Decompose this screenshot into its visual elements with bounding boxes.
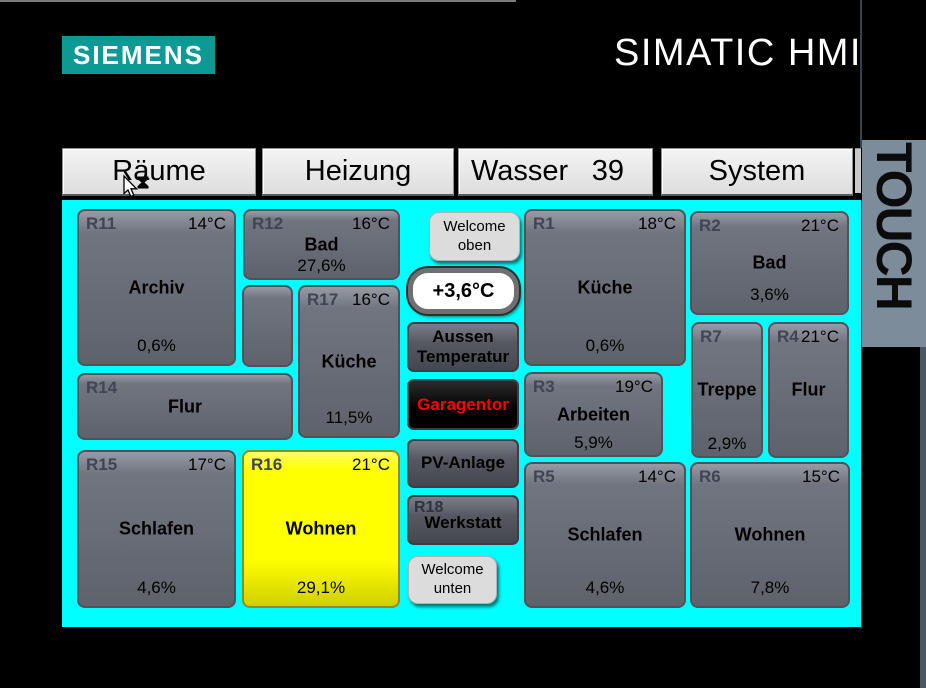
room-name: Arbeiten	[526, 404, 661, 425]
room-id: R3	[533, 377, 555, 397]
room-name: Flur	[770, 380, 847, 401]
tab-heizung[interactable]: Heizung	[262, 148, 454, 196]
outside-temperature-value: +3,6°C	[408, 268, 519, 314]
room-valve-percent: 11,5%	[300, 408, 398, 428]
room-id: R14	[86, 378, 117, 398]
room-name: Bad	[692, 253, 847, 274]
room-name: Küche	[300, 351, 398, 372]
tab-raeume[interactable]: Räume	[62, 148, 256, 196]
room-temperature: 14°C	[188, 214, 226, 234]
room-name: Wohnen	[244, 519, 398, 540]
room-id: R12	[252, 214, 283, 234]
aussen-temperatur-button[interactable]: Aussen Temperatur	[407, 322, 519, 372]
room-temperature: 19°C	[615, 377, 653, 397]
room-button-r5-schlafen[interactable]: R5 14°C Schlafen 4,6%	[524, 462, 686, 608]
pv-anlage-button[interactable]: PV-Anlage	[407, 439, 519, 488]
room-temperature: 14°C	[638, 467, 676, 487]
room-id: R2	[699, 216, 721, 236]
room-valve-percent: 29,1%	[244, 578, 398, 598]
siemens-logo: SIEMENS	[62, 36, 215, 74]
room-valve-percent: 7,8%	[692, 578, 848, 598]
room-id: R11	[86, 214, 116, 234]
room-button-blank[interactable]	[242, 285, 293, 367]
room-valve-percent: 4,6%	[526, 578, 684, 598]
top-hairline	[0, 0, 516, 2]
room-id: R17	[307, 290, 338, 310]
room-button-r2-bad[interactable]: R2 21°C Bad 3,6%	[690, 211, 849, 315]
tab-wasser-value: 39	[592, 155, 624, 188]
room-temperature: 17°C	[188, 455, 226, 475]
room-button-r11-archiv[interactable]: R11 14°C Archiv 0,6%	[77, 209, 236, 366]
welcome-oben-line1: Welcome	[443, 218, 505, 237]
room-id: R7	[700, 327, 722, 347]
room-valve-percent: 5,9%	[526, 433, 661, 453]
tab-system[interactable]: System	[661, 148, 853, 196]
bezel-edge-sliver	[920, 347, 926, 688]
room-button-r17-kueche[interactable]: R17 16°C Küche 11,5%	[298, 285, 400, 438]
welcome-unten-line1: Welcome	[421, 561, 483, 580]
room-button-r7-treppe[interactable]: R7 Treppe 2,9%	[691, 322, 763, 458]
room-id: R15	[86, 455, 117, 475]
aussen-temperatur-line2: Temperatur	[417, 347, 509, 367]
simatic-hmi-title: SIMATIC HMI	[614, 32, 862, 75]
room-id: R5	[533, 467, 555, 487]
room-id: R1	[533, 214, 555, 234]
tab-wasser[interactable]: Wasser 39	[458, 148, 653, 196]
room-valve-percent: 0,6%	[79, 336, 234, 356]
room-button-r6-wohnen[interactable]: R6 15°C Wohnen 7,8%	[690, 462, 850, 608]
room-id: R18	[414, 498, 443, 517]
room-temperature: 15°C	[802, 467, 840, 487]
pv-anlage-label: PV-Anlage	[421, 453, 505, 473]
room-id: R6	[699, 467, 721, 487]
tab-system-label: System	[709, 155, 806, 188]
room-id: R4	[777, 327, 799, 347]
touch-bezel-label: TOUCH	[862, 140, 926, 347]
room-button-r15-schlafen[interactable]: R15 17°C Schlafen 4,6%	[77, 450, 236, 608]
hmi-screen: SIEMENS SIMATIC HMI Räume Heizung Wasser…	[0, 0, 926, 688]
room-temperature: 16°C	[352, 214, 390, 234]
room-temperature: 21°C	[352, 455, 390, 475]
room-name: Schlafen	[526, 525, 684, 546]
room-name: Küche	[526, 277, 684, 298]
room-id: R16	[251, 455, 282, 475]
aussen-temperatur-line1: Aussen	[432, 327, 493, 347]
room-temperature: 21°C	[801, 216, 839, 236]
room-temperature: 18°C	[638, 214, 676, 234]
outside-temperature-text: +3,6°C	[433, 280, 495, 303]
room-name: Bad	[245, 234, 398, 255]
tab-raeume-label: Räume	[112, 155, 206, 188]
garagentor-button[interactable]: Garagentor	[407, 379, 519, 430]
garagentor-label: Garagentor	[417, 395, 509, 415]
room-name: Treppe	[693, 380, 761, 401]
room-button-r12-bad[interactable]: R12 16°C Bad 27,6%	[243, 209, 400, 280]
room-button-r16-wohnen-active[interactable]: R16 21°C Wohnen 29,1%	[242, 450, 400, 608]
welcome-oben-line2: oben	[458, 237, 491, 256]
room-name: Flur	[79, 396, 291, 417]
room-button-r1-kueche[interactable]: R1 18°C Küche 0,6%	[524, 209, 686, 366]
room-valve-percent: 0,6%	[526, 336, 684, 356]
tab-heizung-label: Heizung	[305, 155, 411, 188]
room-temperature: 16°C	[352, 290, 390, 310]
welcome-unten-button[interactable]: Welcome unten	[408, 556, 497, 604]
room-name: Schlafen	[79, 519, 234, 540]
room-valve-percent: 27,6%	[245, 256, 398, 276]
room-button-r4-flur[interactable]: R4 21°C Flur	[768, 322, 849, 458]
room-name: Archiv	[79, 277, 234, 298]
room-button-r18-werkstatt[interactable]: R18 Werkstatt	[407, 495, 519, 545]
welcome-unten-line2: unten	[434, 580, 472, 599]
room-temperature: 21°C	[801, 327, 839, 347]
welcome-oben-button[interactable]: Welcome oben	[429, 212, 520, 261]
room-valve-percent: 2,9%	[693, 434, 761, 454]
room-valve-percent: 3,6%	[692, 285, 847, 305]
tab-stub	[855, 148, 861, 193]
tab-wasser-label: Wasser	[471, 155, 568, 188]
room-button-r14-flur[interactable]: R14 Flur	[77, 373, 293, 440]
room-valve-percent: 4,6%	[79, 578, 234, 598]
room-name: Wohnen	[692, 525, 848, 546]
room-button-r3-arbeiten[interactable]: R3 19°C Arbeiten 5,9%	[524, 372, 663, 457]
